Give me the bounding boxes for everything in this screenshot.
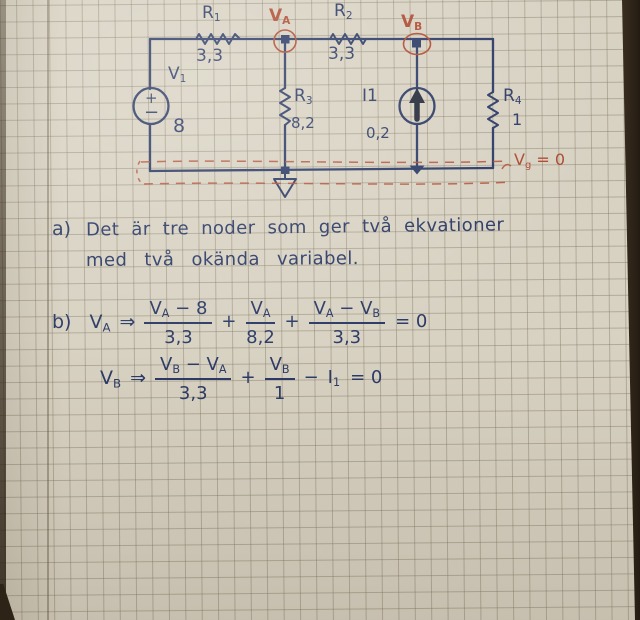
part-b-label: b): [52, 311, 71, 333]
eq-b-plus-1: +: [240, 367, 255, 388]
resistor-r4-symbol: [488, 92, 498, 128]
bottom-wire: [150, 168, 493, 171]
resistor-r2-symbol: [330, 34, 366, 44]
label-r3: R3: [294, 88, 313, 106]
photo-edge-left: [0, 0, 6, 620]
eq-a-arrow: ⇒: [120, 311, 136, 333]
resistor-r3-symbol: [280, 88, 290, 125]
ground-highlight-curl: [502, 165, 511, 169]
ground-icon: [274, 179, 296, 197]
part-a-label: a): [52, 218, 71, 240]
eq-b-current-term: I1: [328, 367, 340, 389]
value-r1: 3,3: [196, 48, 223, 65]
notebook-photo: R1 3,3 VA R2 3,3 VB V1 + − 8 R3 8,2 I1 0…: [0, 0, 640, 620]
label-ground-voltage: Vg = 0: [514, 152, 565, 171]
eq-b-fraction-1: VB − VA 3,3: [155, 354, 231, 404]
eq-a-lhs: VA: [89, 311, 110, 334]
eq-b-fraction-2: VB 1: [265, 354, 295, 404]
eq-b-minus: −: [304, 367, 319, 388]
ground-highlight-dash-left: [137, 161, 143, 185]
equation-node-a: b) VA ⇒ VA − 8 3,3 + VA 8,2 + VA − VB 3,…: [52, 298, 427, 348]
eq-a-plus-2: +: [284, 311, 299, 332]
node-dot-a: [281, 35, 290, 44]
eq-a-plus-1: +: [221, 311, 236, 332]
eq-b-lhs: VB: [100, 367, 121, 390]
v1-minus-sign: −: [144, 104, 159, 122]
node-dot-b: [412, 39, 421, 48]
eq-a-rhs: = 0: [395, 311, 427, 332]
eq-b-arrow: ⇒: [130, 367, 146, 389]
value-r4: 1: [512, 112, 522, 128]
value-i1: 0,2: [366, 126, 390, 141]
ground-highlight-dash-upper: [141, 161, 508, 162]
equation-node-b: VB ⇒ VB − VA 3,3 + VB 1 − I1 = 0: [100, 354, 382, 404]
label-node-a: VA: [269, 8, 290, 26]
label-i1: I1: [362, 88, 378, 105]
label-node-b: VB: [401, 14, 422, 32]
label-r4: R4: [503, 88, 522, 106]
label-v1: V1: [168, 66, 186, 84]
value-r2: 3,3: [328, 46, 355, 63]
value-r3: 8,2: [291, 116, 315, 131]
label-r1: R1: [202, 5, 221, 23]
node-dot-ground-b: [410, 166, 425, 175]
part-a-line2: med två okända variabel.: [86, 248, 359, 271]
ground-highlight-dash-lower: [144, 182, 512, 184]
eq-a-fraction-3: VA − VB 3,3: [309, 298, 385, 348]
circuit-diagram: [0, 0, 640, 212]
value-v1: 8: [173, 117, 185, 136]
node-dot-ground-a: [281, 167, 290, 175]
eq-a-fraction-2: VA 8,2: [246, 298, 276, 348]
eq-a-fraction-1: VA − 8 3,3: [144, 298, 212, 348]
current-arrow-head: [409, 88, 425, 103]
label-r2: R2: [334, 3, 353, 21]
eq-b-rhs: = 0: [350, 367, 382, 388]
